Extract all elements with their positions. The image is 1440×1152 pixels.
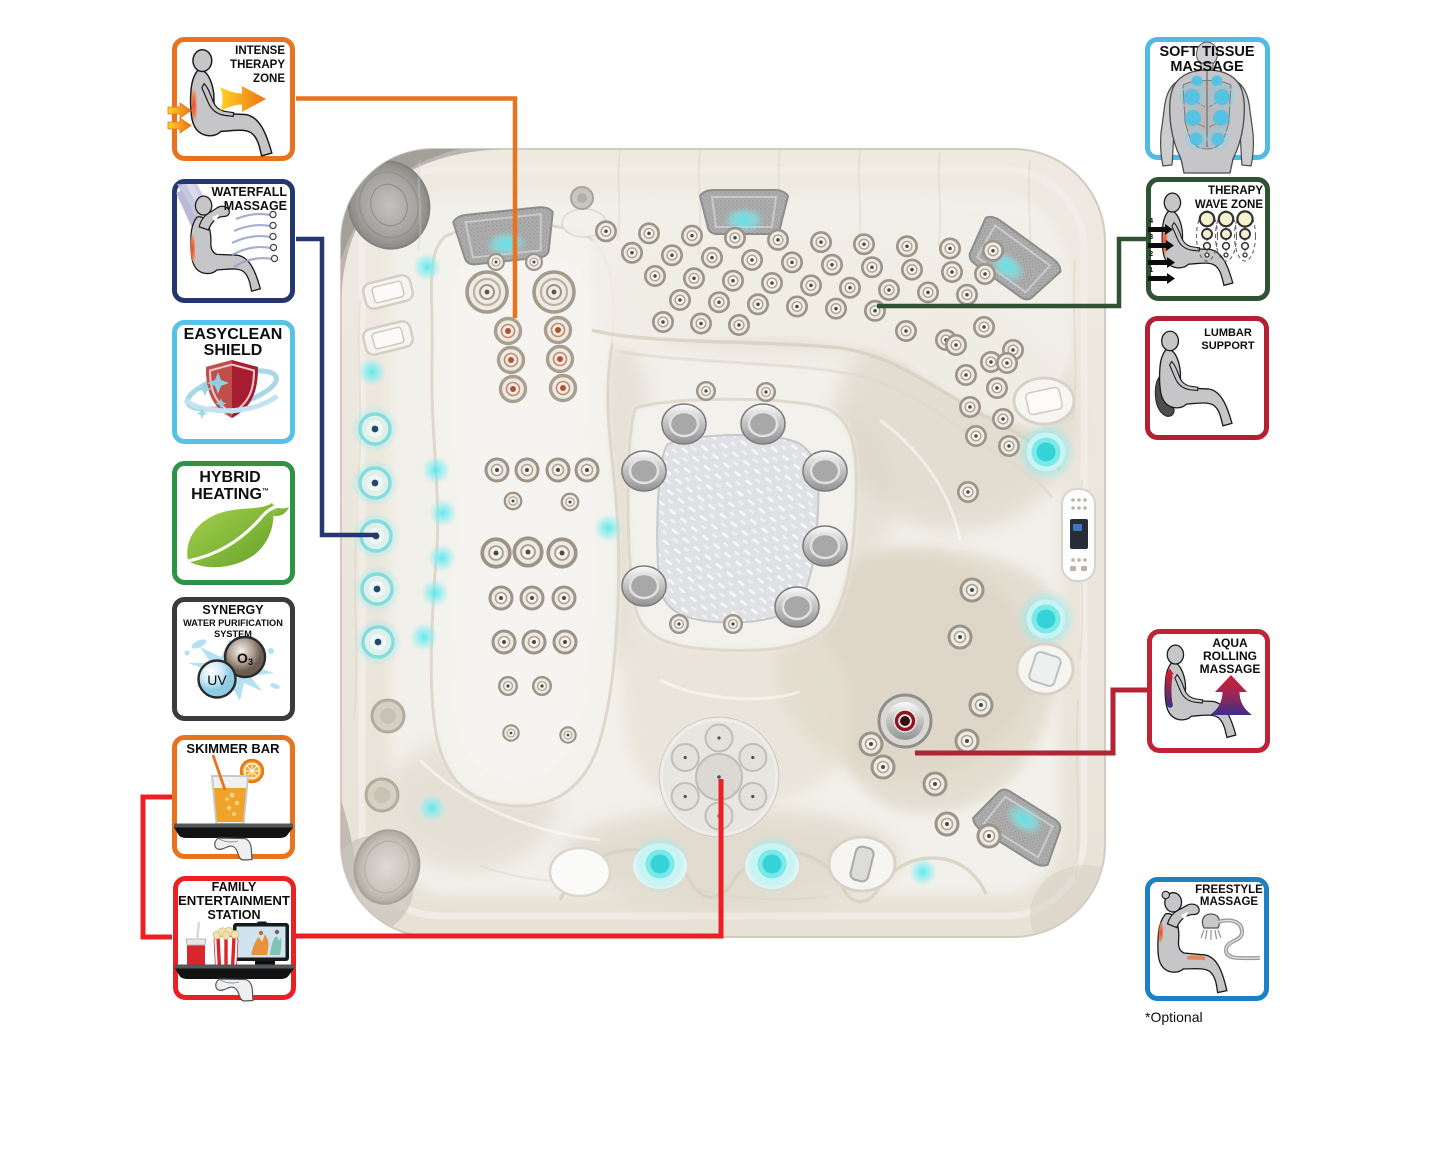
svg-text:HYBRID: HYBRID: [199, 469, 260, 486]
svg-text:WATERFALL: WATERFALL: [212, 185, 288, 199]
svg-text:UV: UV: [207, 672, 227, 688]
svg-text:STATION: STATION: [207, 908, 260, 922]
svg-text:MASSAGE: MASSAGE: [1170, 59, 1244, 75]
svg-text:LUMBAR: LUMBAR: [1204, 327, 1252, 339]
svg-text:THERAPY: THERAPY: [1208, 185, 1263, 197]
svg-text:ENTERTAINMENT: ENTERTAINMENT: [178, 894, 290, 908]
svg-text:SHIELD: SHIELD: [204, 342, 263, 359]
svg-text:ROLLING: ROLLING: [1203, 649, 1257, 663]
svg-text:FAMILY: FAMILY: [212, 880, 257, 894]
svg-text:EASYCLEAN: EASYCLEAN: [184, 326, 283, 343]
svg-text:HEATING™: HEATING™: [191, 486, 269, 503]
svg-text:ZONE: ZONE: [253, 73, 285, 85]
svg-text:*Optional: *Optional: [1145, 1009, 1203, 1025]
svg-text:WATER PURIFICATION: WATER PURIFICATION: [183, 618, 283, 628]
svg-text:MASSAGE: MASSAGE: [1200, 896, 1258, 908]
svg-text:SYNERGY: SYNERGY: [202, 603, 264, 617]
svg-text:2: 2: [1149, 249, 1153, 258]
svg-text:THERAPY: THERAPY: [230, 59, 285, 71]
svg-text:INTENSE: INTENSE: [235, 45, 285, 57]
svg-text:1: 1: [1149, 265, 1153, 274]
svg-text:WAVE ZONE: WAVE ZONE: [1195, 199, 1263, 211]
svg-text:SKIMMER BAR: SKIMMER BAR: [186, 741, 280, 756]
svg-text:AQUA: AQUA: [1212, 636, 1248, 650]
svg-text:FREESTYLE: FREESTYLE: [1195, 884, 1263, 896]
svg-text:SUPPORT: SUPPORT: [1201, 340, 1254, 352]
svg-text:MASSAGE: MASSAGE: [1200, 662, 1261, 676]
svg-text:SOFT TISSUE: SOFT TISSUE: [1159, 44, 1254, 60]
svg-text:3: 3: [1149, 232, 1153, 241]
svg-text:MASSAGE: MASSAGE: [224, 199, 287, 213]
